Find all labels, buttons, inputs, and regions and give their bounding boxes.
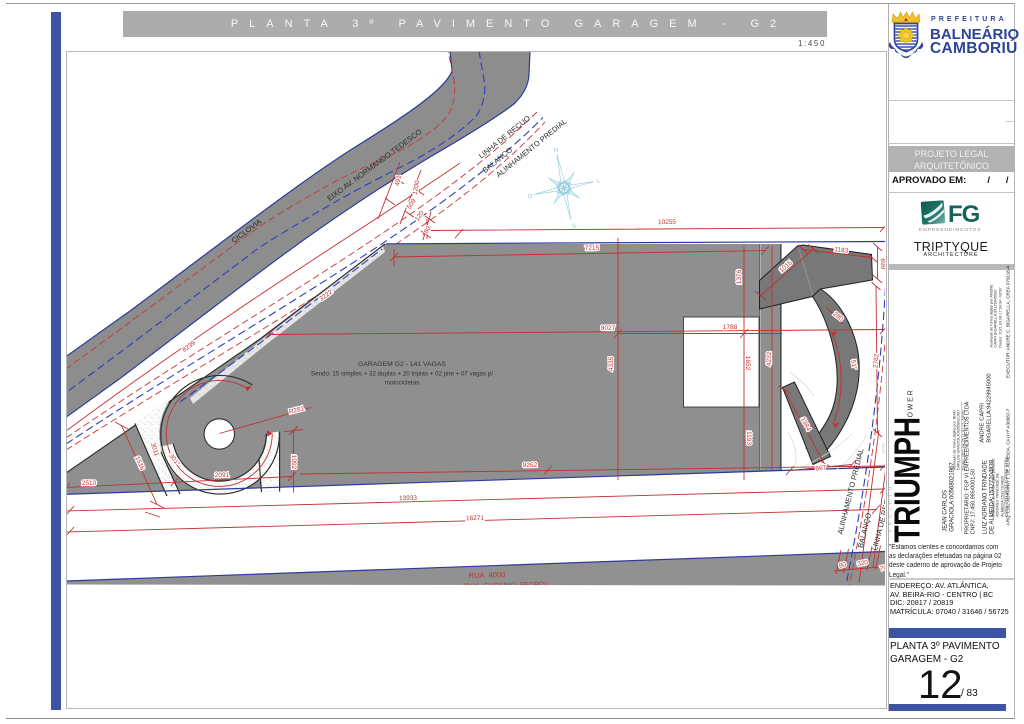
svg-text:(RUA EUGENIO PEDRO): (RUA EUGENIO PEDRO): [463, 581, 548, 590]
svg-text:509: 509: [406, 197, 418, 210]
svg-text:RUA 4000: RUA 4000: [468, 570, 505, 580]
svg-text:O: O: [527, 194, 533, 201]
svg-text:8027: 8027: [601, 325, 616, 332]
svg-text:FG: FG: [948, 201, 980, 228]
svg-text:1200: 1200: [412, 180, 422, 196]
svg-text:2762: 2762: [873, 353, 881, 368]
svg-text:LINHA DE RECU: LINHA DE RECU: [870, 493, 885, 551]
svg-text:70: 70: [879, 564, 885, 572]
svg-text:9262: 9262: [523, 462, 538, 469]
svg-text:120: 120: [414, 209, 426, 222]
svg-text:7215: 7215: [585, 245, 600, 252]
svg-text:Sendo: 15 simples + 32 duplas: Sendo: 15 simples + 32 duplas + 20 tripl…: [311, 371, 493, 378]
svg-text:4232: 4232: [766, 351, 773, 366]
svg-text:1193: 1193: [745, 431, 752, 445]
svg-text:motocicletas: motocicletas: [385, 380, 419, 387]
svg-text:491: 491: [394, 174, 403, 186]
svg-text:1788: 1788: [723, 324, 738, 331]
svg-text:2091: 2091: [215, 472, 230, 479]
svg-text:GARAGEM G2 - 141 VAGAS: GARAGEM G2 - 141 VAGAS: [358, 361, 446, 368]
svg-text:S: S: [572, 223, 577, 230]
svg-text:4335: 4335: [608, 356, 615, 371]
svg-text:10255: 10255: [658, 219, 677, 226]
svg-text:8239: 8239: [181, 339, 197, 353]
svg-text:16271: 16271: [466, 515, 485, 522]
svg-text:1092: 1092: [290, 455, 297, 470]
svg-text:699: 699: [879, 258, 885, 270]
svg-text:1376: 1376: [736, 269, 743, 284]
svg-text:667: 667: [815, 464, 827, 472]
svg-text:1652: 1652: [744, 356, 751, 371]
svg-text:2510: 2510: [82, 480, 97, 487]
svg-text:L: L: [596, 178, 601, 185]
svg-text:13933: 13933: [399, 495, 418, 502]
svg-text:N: N: [553, 147, 558, 154]
